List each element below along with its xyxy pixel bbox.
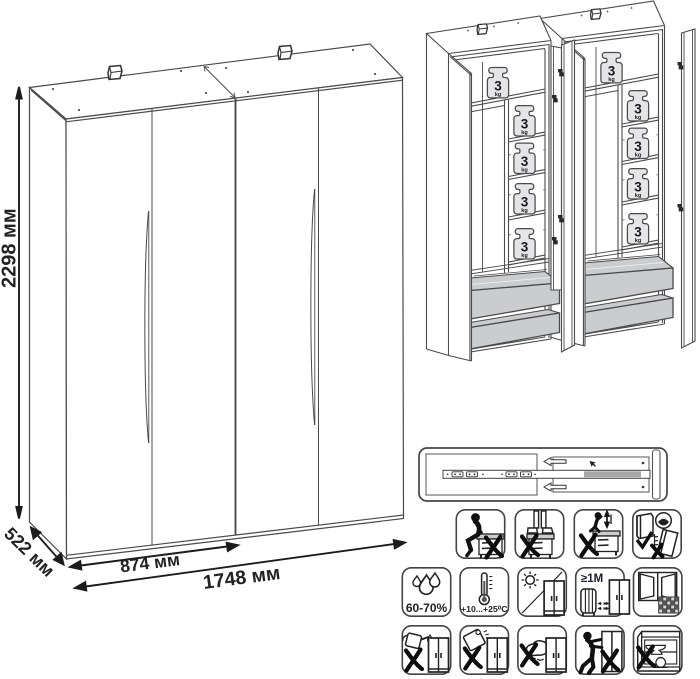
svg-text:2298 мм: 2298 мм <box>0 208 21 288</box>
svg-text:60-70%: 60-70% <box>406 601 448 615</box>
svg-text:+10...+25⁰C: +10...+25⁰C <box>461 604 508 614</box>
svg-text:≥1M: ≥1M <box>581 573 603 585</box>
